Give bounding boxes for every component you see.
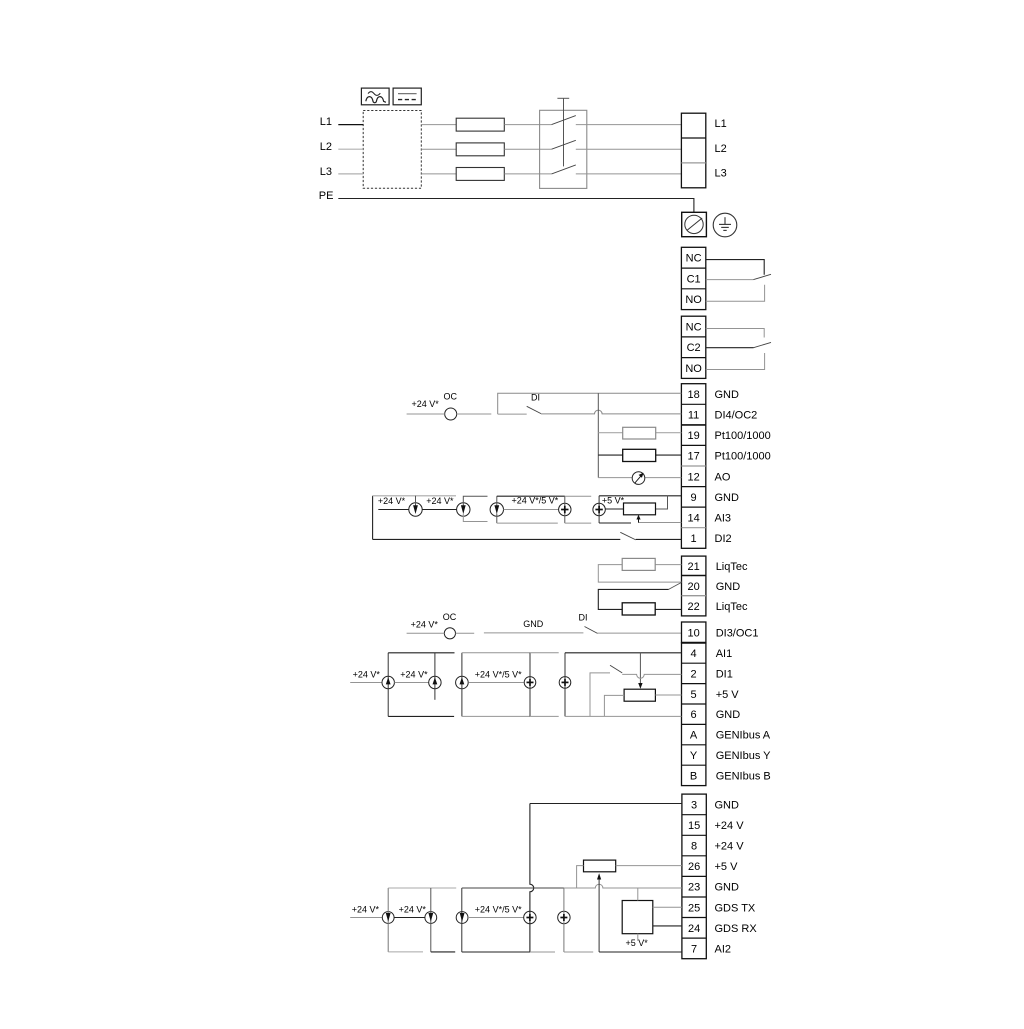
svg-text:14: 14 — [687, 512, 699, 524]
svg-text:9: 9 — [691, 492, 697, 504]
svg-text:15: 15 — [688, 820, 700, 832]
svg-text:+24 V*: +24 V* — [400, 669, 428, 679]
svg-text:+24 V*: +24 V* — [426, 496, 454, 506]
svg-text:2: 2 — [691, 668, 697, 680]
svg-text:+24 V: +24 V — [715, 820, 745, 832]
svg-text:GND: GND — [523, 619, 544, 629]
svg-text:+24 V*: +24 V* — [399, 905, 427, 915]
svg-text:+5 V: +5 V — [716, 689, 740, 701]
svg-text:DI1: DI1 — [716, 668, 733, 680]
svg-text:3: 3 — [691, 799, 697, 811]
svg-text:+24 V*/5 V*: +24 V*/5 V* — [475, 905, 522, 915]
svg-text:17: 17 — [687, 451, 699, 463]
svg-text:+24 V*: +24 V* — [412, 399, 440, 409]
svg-text:22: 22 — [687, 601, 699, 613]
svg-text:DI: DI — [579, 613, 588, 623]
svg-text:L2: L2 — [320, 141, 332, 153]
svg-text:DI: DI — [531, 393, 540, 403]
svg-text:LiqTec: LiqTec — [716, 561, 748, 573]
svg-text:Pt100/1000: Pt100/1000 — [715, 430, 771, 442]
svg-text:11: 11 — [688, 410, 699, 422]
svg-text:A: A — [690, 730, 698, 742]
svg-text:4: 4 — [691, 648, 697, 660]
svg-text:C2: C2 — [687, 342, 701, 354]
svg-text:C1: C1 — [687, 273, 701, 285]
svg-text:AO: AO — [715, 471, 731, 483]
svg-text:DI4/OC2: DI4/OC2 — [715, 410, 758, 422]
svg-text:26: 26 — [688, 861, 700, 873]
svg-text:NC: NC — [686, 253, 702, 265]
svg-text:20: 20 — [687, 581, 699, 593]
svg-text:GDS TX: GDS TX — [715, 902, 756, 914]
svg-text:NC: NC — [686, 322, 702, 334]
svg-text:GENIbus B: GENIbus B — [716, 770, 771, 782]
svg-text:L2: L2 — [715, 143, 727, 155]
svg-text:Y: Y — [690, 750, 698, 762]
svg-text:LiqTec: LiqTec — [716, 601, 748, 613]
svg-text:GND: GND — [716, 581, 741, 593]
svg-text:+24 V*/5 V*: +24 V*/5 V* — [512, 495, 559, 505]
svg-text:7: 7 — [691, 943, 697, 955]
svg-text:Pt100/1000: Pt100/1000 — [715, 451, 771, 463]
svg-text:GND: GND — [715, 882, 740, 894]
svg-text:AI3: AI3 — [715, 512, 732, 524]
svg-text:OC: OC — [444, 392, 458, 402]
svg-text:21: 21 — [687, 561, 699, 573]
svg-text:GND: GND — [715, 389, 740, 401]
svg-text:23: 23 — [688, 882, 700, 894]
svg-text:PE: PE — [319, 190, 334, 202]
svg-text:+24 V*: +24 V* — [353, 669, 381, 679]
svg-text:L1: L1 — [320, 116, 332, 128]
svg-text:5: 5 — [691, 689, 697, 701]
svg-text:B: B — [690, 770, 697, 782]
svg-text:GENIbus A: GENIbus A — [716, 730, 771, 742]
svg-text:GENIbus Y: GENIbus Y — [716, 750, 771, 762]
svg-text:L1: L1 — [715, 118, 727, 130]
svg-text:24: 24 — [688, 923, 700, 935]
svg-text:OC: OC — [443, 612, 457, 622]
svg-text:L3: L3 — [715, 168, 727, 180]
svg-text:+5 V*: +5 V* — [626, 938, 649, 948]
svg-text:+24 V*/5 V*: +24 V*/5 V* — [475, 669, 522, 679]
svg-text:GND: GND — [715, 799, 740, 811]
svg-text:GND: GND — [715, 492, 740, 504]
svg-text:18: 18 — [687, 389, 699, 401]
svg-text:L3: L3 — [320, 166, 332, 178]
svg-text:25: 25 — [688, 902, 700, 914]
svg-text:+24 V*: +24 V* — [378, 496, 406, 506]
svg-text:19: 19 — [687, 430, 699, 442]
svg-text:+24 V*: +24 V* — [411, 620, 439, 630]
svg-text:AI2: AI2 — [715, 943, 732, 955]
svg-text:+5 V: +5 V — [715, 861, 739, 873]
svg-text:+24 V*: +24 V* — [352, 905, 380, 915]
svg-text:NO: NO — [685, 363, 702, 375]
svg-text:DI2: DI2 — [715, 533, 732, 545]
svg-text:NO: NO — [685, 294, 702, 306]
svg-text:GND: GND — [716, 709, 741, 721]
svg-text:+24 V: +24 V — [715, 841, 745, 853]
svg-text:10: 10 — [687, 627, 699, 639]
svg-text:AI1: AI1 — [716, 648, 733, 660]
svg-text:12: 12 — [687, 471, 699, 483]
svg-text:GDS RX: GDS RX — [715, 923, 758, 935]
svg-text:8: 8 — [691, 841, 697, 853]
svg-text:DI3/OC1: DI3/OC1 — [716, 627, 759, 639]
svg-text:6: 6 — [691, 709, 697, 721]
svg-text:1: 1 — [691, 533, 697, 545]
svg-text:+5 V*: +5 V* — [602, 495, 625, 505]
